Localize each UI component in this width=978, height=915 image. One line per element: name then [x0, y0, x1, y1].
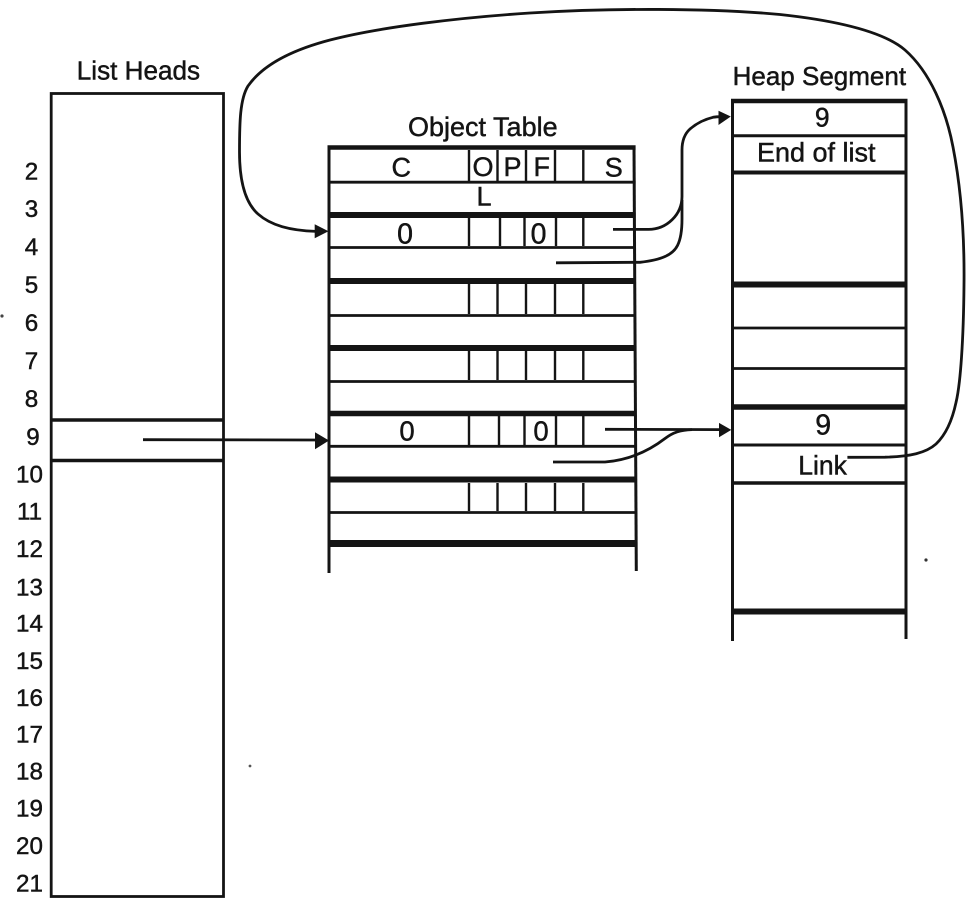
svg-text:10: 10	[16, 461, 43, 488]
svg-text:F: F	[533, 152, 550, 182]
svg-text:9: 9	[815, 410, 831, 442]
svg-text:Link: Link	[798, 451, 847, 481]
svg-text:2: 2	[25, 159, 38, 186]
svg-text:13: 13	[16, 574, 43, 601]
svg-text:8: 8	[25, 386, 38, 413]
svg-text:O: O	[472, 152, 493, 182]
svg-text:5: 5	[25, 272, 38, 299]
svg-text:End of list: End of list	[757, 138, 876, 168]
svg-text:Object Table: Object Table	[408, 112, 558, 142]
svg-text:C: C	[391, 153, 411, 183]
svg-text:7: 7	[25, 348, 38, 375]
svg-text:19: 19	[16, 796, 43, 823]
svg-text:List Heads: List Heads	[77, 56, 200, 86]
svg-text:14: 14	[16, 611, 43, 638]
svg-text:L: L	[476, 182, 491, 212]
svg-text:9: 9	[26, 424, 39, 451]
svg-text:15: 15	[16, 648, 43, 675]
svg-text:21: 21	[16, 871, 43, 898]
svg-text:16: 16	[16, 685, 43, 712]
svg-text:11: 11	[17, 499, 42, 526]
svg-text:9: 9	[815, 103, 830, 133]
svg-text:S: S	[605, 152, 623, 182]
svg-text:0: 0	[533, 416, 548, 447]
svg-text:0: 0	[531, 219, 547, 251]
svg-text:4: 4	[25, 234, 38, 261]
svg-text:0: 0	[399, 416, 414, 447]
svg-text:20: 20	[16, 833, 43, 860]
svg-text:6: 6	[25, 310, 38, 337]
svg-text:18: 18	[16, 759, 43, 786]
svg-text:12: 12	[16, 536, 43, 563]
svg-text:17: 17	[16, 722, 43, 749]
svg-text:0: 0	[397, 219, 413, 251]
svg-text:Heap Segment: Heap Segment	[733, 61, 907, 91]
svg-text:P: P	[503, 152, 521, 182]
svg-text:3: 3	[25, 196, 38, 223]
